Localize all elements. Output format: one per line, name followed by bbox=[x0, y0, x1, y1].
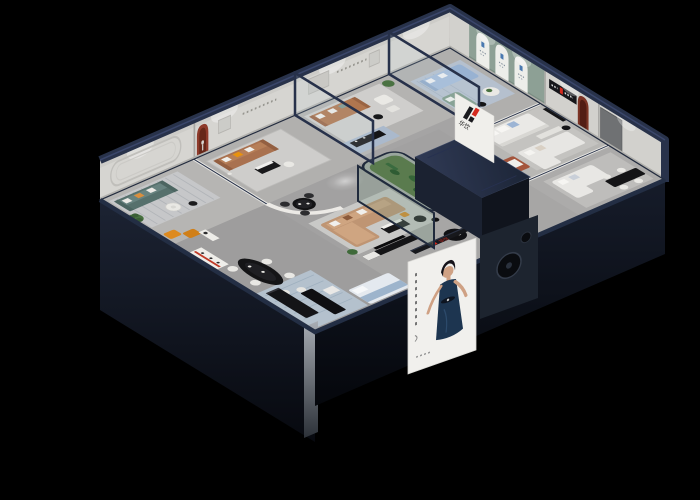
showroom-screenshot: Isometric 3D cutaway render of a furnitu… bbox=[0, 0, 700, 500]
showroom-render: Isometric 3D cutaway render of a furnitu… bbox=[0, 0, 700, 500]
model-poster bbox=[408, 238, 476, 374]
